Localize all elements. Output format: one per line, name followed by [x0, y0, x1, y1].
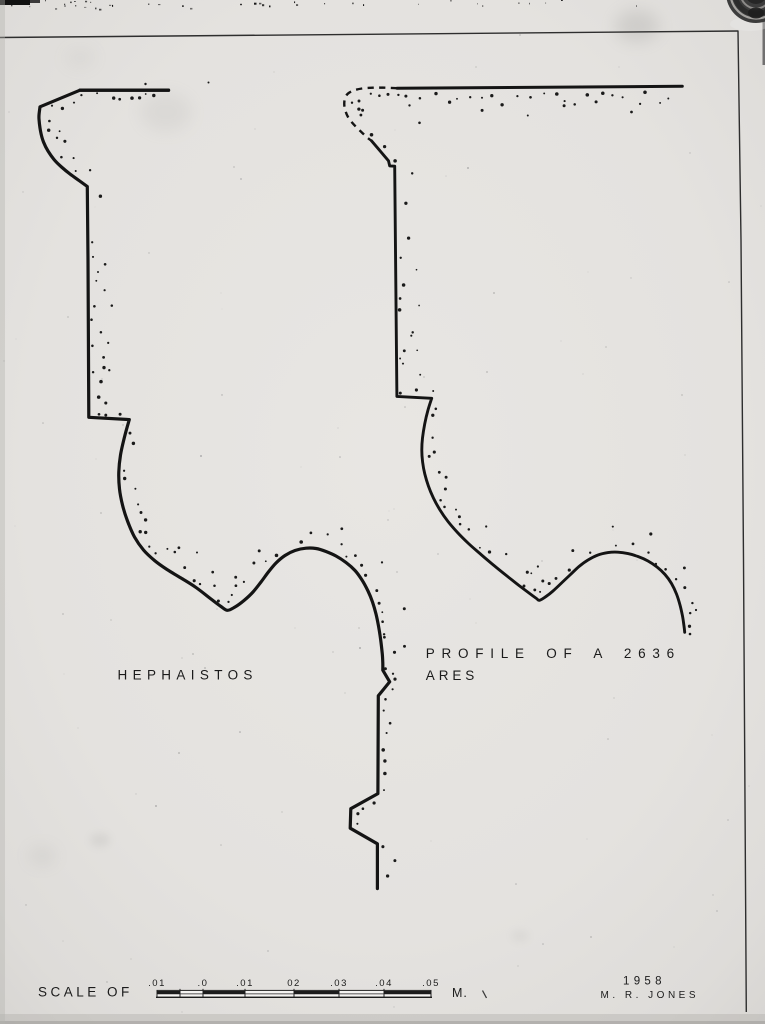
- svg-text:1958: 1958: [623, 975, 666, 987]
- svg-text:02: 02: [287, 978, 301, 989]
- svg-text:.0: .0: [198, 978, 209, 989]
- svg-text:.01: .01: [236, 978, 254, 989]
- svg-text:PROFILE OF A 2636: PROFILE OF A 2636: [426, 646, 681, 661]
- svg-text:ARES: ARES: [426, 668, 478, 683]
- svg-text:SCALE OF: SCALE OF: [38, 984, 133, 999]
- svg-text:.01: .01: [148, 978, 166, 989]
- svg-text:M.: M.: [452, 986, 468, 1000]
- svg-text:.05: .05: [422, 978, 440, 989]
- svg-text:.04: .04: [375, 978, 393, 989]
- svg-text:M. R. JONES: M. R. JONES: [601, 990, 700, 1001]
- svg-text:.03: .03: [330, 978, 348, 989]
- svg-text:HEPHAISTOS: HEPHAISTOS: [118, 668, 258, 683]
